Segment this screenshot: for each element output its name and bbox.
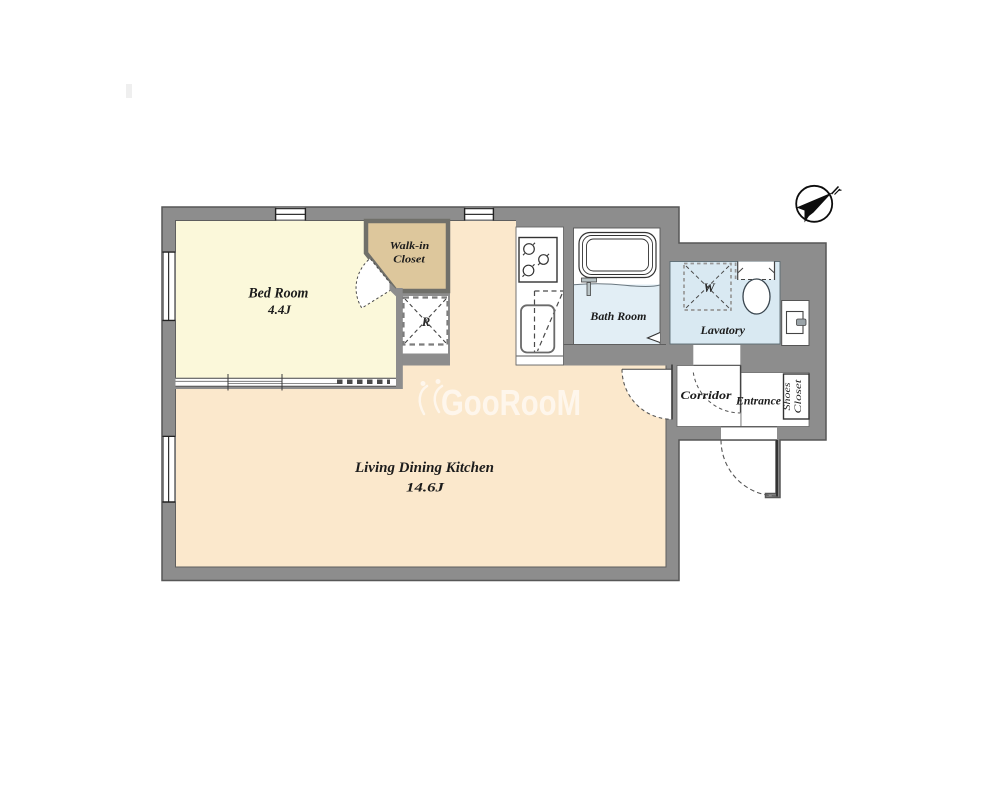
svg-text:Shoes: Shoes xyxy=(782,382,793,410)
svg-text:Entrance: Entrance xyxy=(735,395,781,407)
svg-text:Lavatory: Lavatory xyxy=(699,325,745,337)
svg-text:Closet: Closet xyxy=(793,379,804,413)
svg-text:R: R xyxy=(421,315,430,329)
svg-text:GooRooM: GooRooM xyxy=(441,382,581,423)
svg-text:Corridor: Corridor xyxy=(681,390,733,402)
svg-text:Walk-in: Walk-in xyxy=(390,241,430,252)
svg-text:4.4J: 4.4J xyxy=(267,303,292,317)
svg-text:W: W xyxy=(703,281,715,295)
svg-text:Bed Room: Bed Room xyxy=(247,286,308,302)
svg-text:Bath Room: Bath Room xyxy=(589,311,646,323)
svg-text:Living Dining Kitchen: Living Dining Kitchen xyxy=(354,460,494,476)
svg-text:14.6J: 14.6J xyxy=(406,481,445,495)
svg-text:Closet: Closet xyxy=(393,254,426,265)
